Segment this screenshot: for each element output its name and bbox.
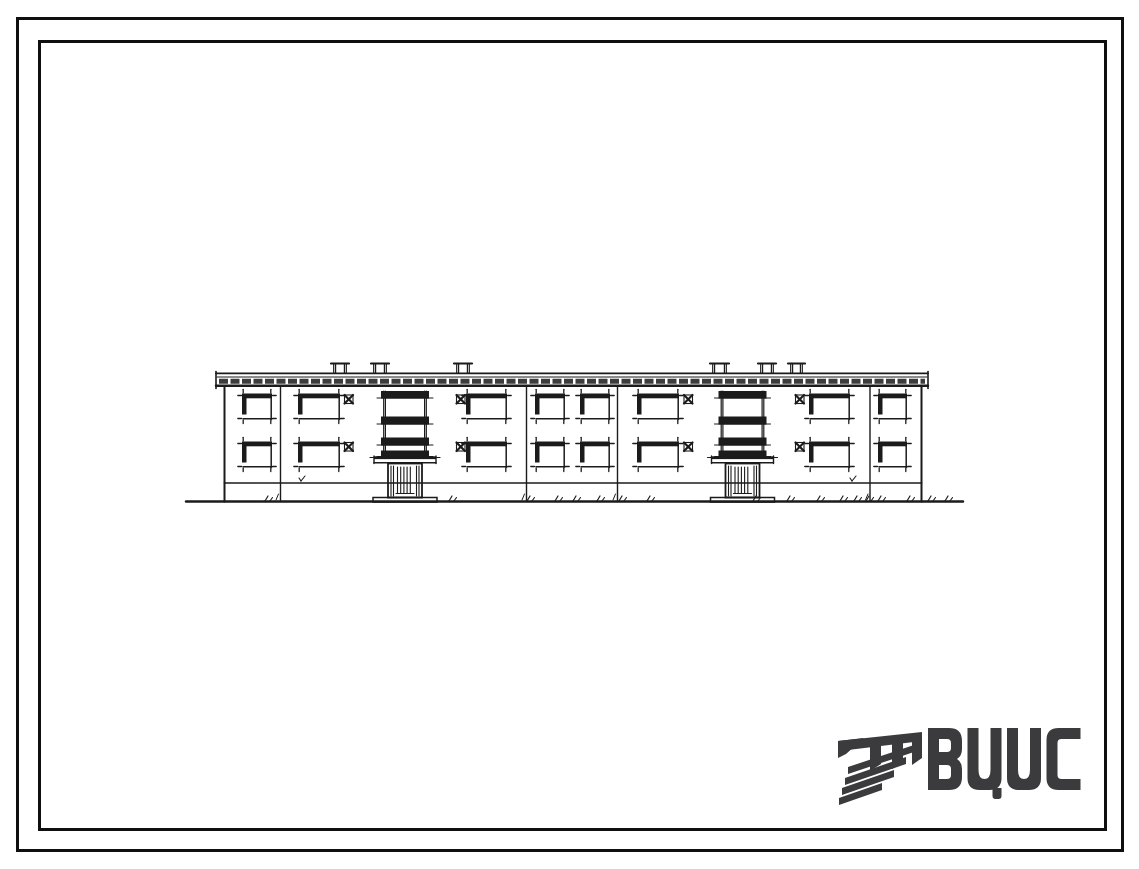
logo-wordmark <box>928 728 1081 799</box>
logo-mark-icon <box>838 732 922 805</box>
logo <box>836 720 1082 808</box>
facade-lines <box>186 364 963 503</box>
drawing-sheet <box>0 0 1139 869</box>
